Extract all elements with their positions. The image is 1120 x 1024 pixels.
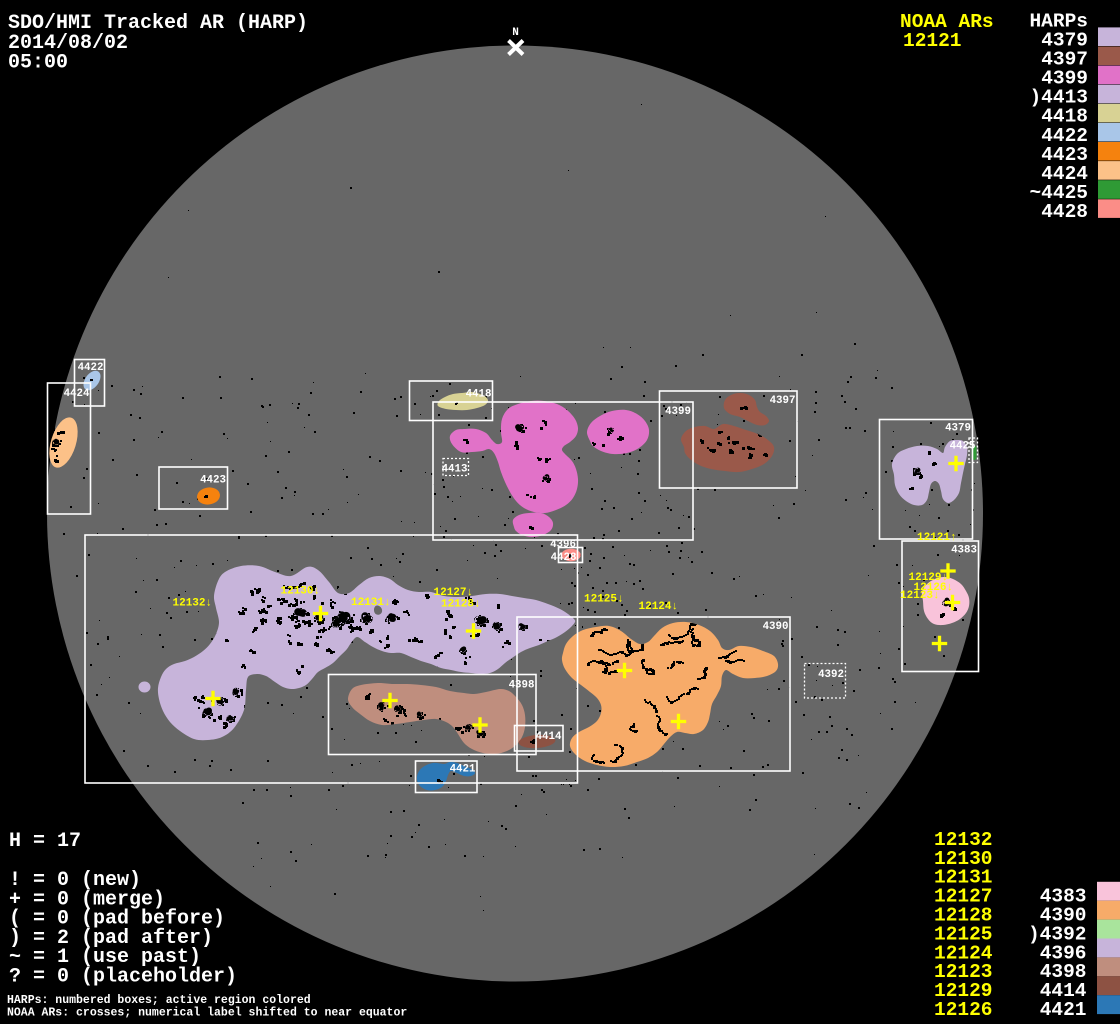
svg-text:4421: 4421: [1040, 999, 1087, 1021]
svg-text:? = 0 (placeholder): ? = 0 (placeholder): [9, 966, 237, 989]
svg-text:4422: 4422: [78, 362, 104, 374]
svg-text:H = 17: H = 17: [9, 830, 81, 853]
svg-text:12121: 12121: [903, 30, 962, 52]
svg-text:4428: 4428: [551, 552, 577, 564]
svg-text:4398: 4398: [509, 680, 535, 692]
svg-text:4413: 4413: [442, 464, 468, 476]
svg-text:4392: 4392: [818, 669, 844, 681]
svg-text:4399: 4399: [665, 406, 691, 418]
svg-text:12131↓: 12131↓: [351, 597, 391, 609]
svg-text:4379: 4379: [945, 423, 971, 435]
svg-text:05:00: 05:00: [8, 52, 68, 75]
svg-text:12130↓: 12130↓: [281, 586, 321, 598]
svg-text:4421: 4421: [450, 764, 476, 776]
svg-text:4424: 4424: [64, 388, 90, 400]
svg-text:12125↓: 12125↓: [584, 594, 624, 606]
svg-text:NOAA ARs: crosses; numerical l: NOAA ARs: crosses; numerical label shift…: [7, 1006, 407, 1019]
svg-text:12126: 12126: [934, 999, 993, 1021]
svg-text:4414: 4414: [536, 731, 562, 743]
svg-text:12132↓: 12132↓: [173, 598, 213, 610]
svg-text:4396: 4396: [550, 539, 576, 551]
svg-text:12123↓: 12123↓: [900, 590, 940, 602]
svg-text:12128↓: 12128↓: [441, 599, 481, 611]
svg-text:4418: 4418: [466, 389, 492, 401]
svg-text:12121↑: 12121↑: [917, 532, 957, 544]
svg-text:4428: 4428: [1041, 201, 1088, 223]
svg-text:12124↓: 12124↓: [639, 601, 679, 613]
svg-text:4397: 4397: [770, 395, 796, 407]
svg-text:4383: 4383: [951, 545, 977, 557]
svg-text:4425: 4425: [950, 441, 976, 453]
svg-text:HARPs: numbered boxes; active: HARPs: numbered boxes; active region col…: [7, 994, 311, 1007]
svg-text:12127↓: 12127↓: [434, 587, 474, 599]
svg-text:4423: 4423: [200, 475, 226, 487]
svg-text:4390: 4390: [763, 621, 789, 633]
svg-text:N: N: [512, 27, 519, 39]
